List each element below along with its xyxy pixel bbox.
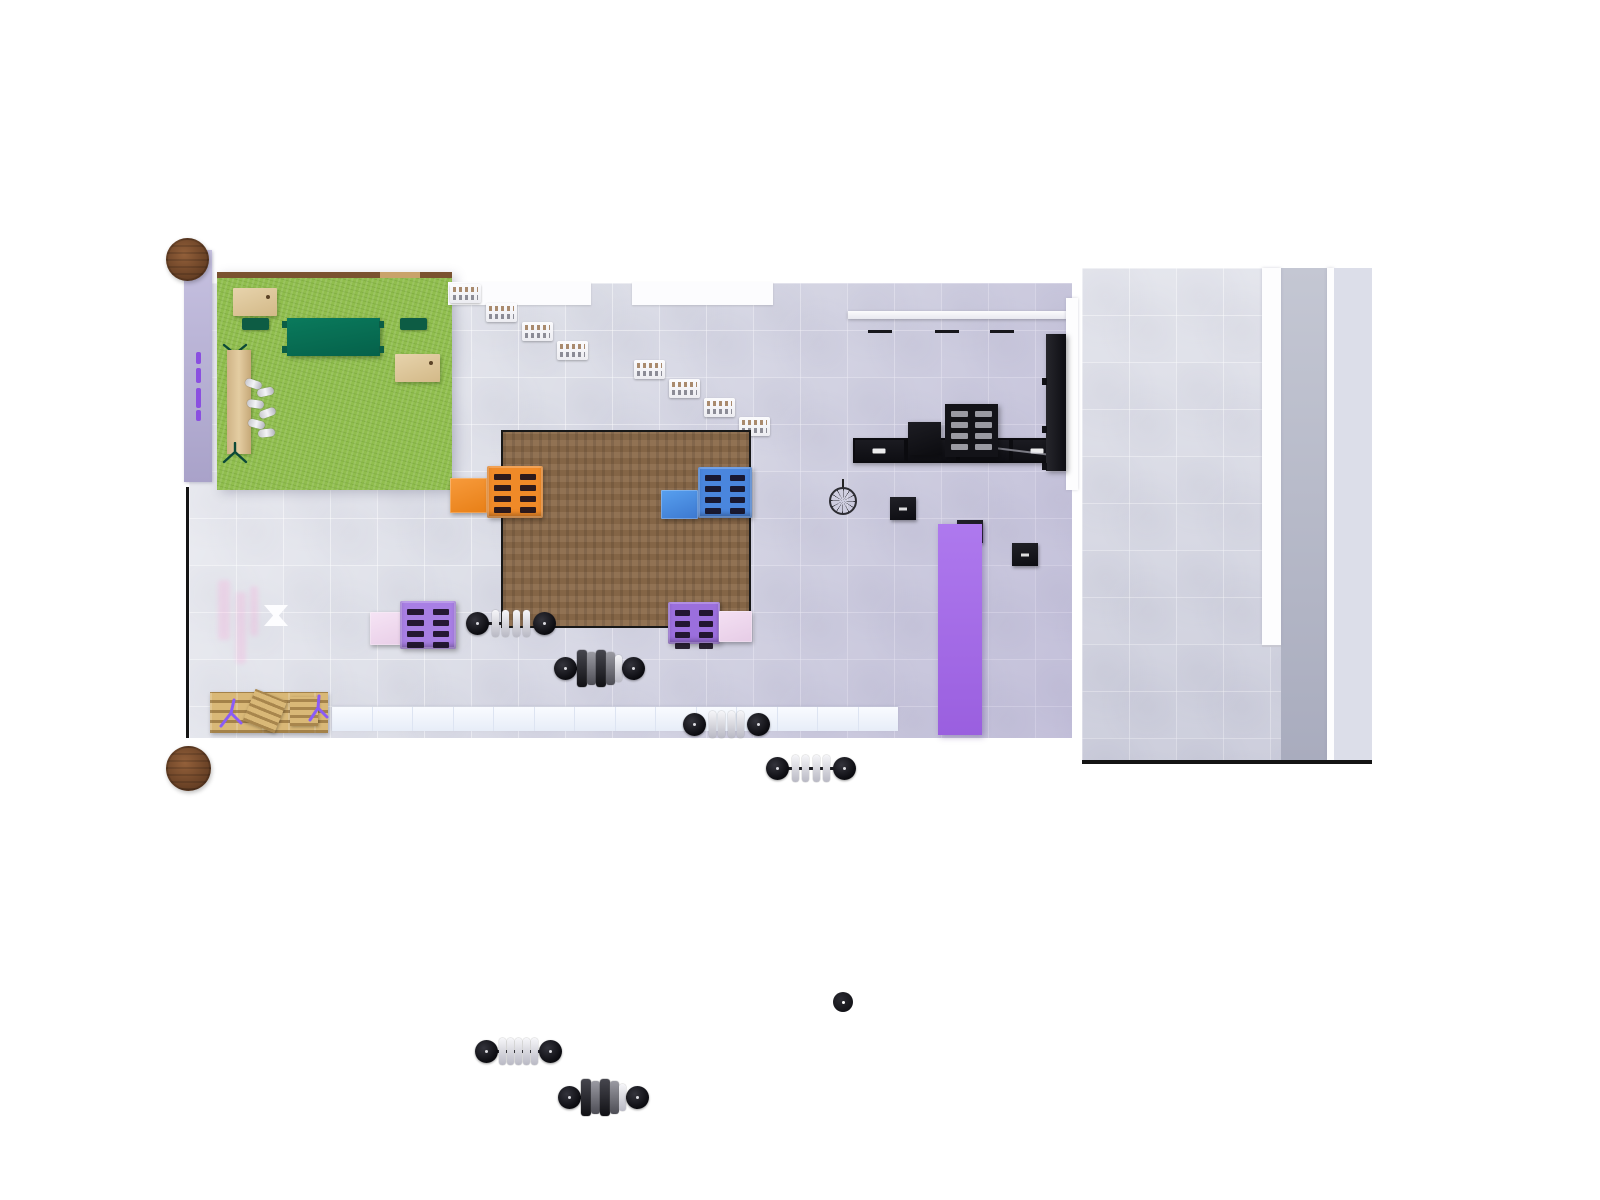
purple-pallet-rack-right <box>668 602 720 644</box>
plate-icon <box>833 757 856 780</box>
floor-decal-1 <box>218 580 230 640</box>
cubby-cell <box>494 707 535 731</box>
plate-icon <box>622 657 645 680</box>
right-hall-wall-strip <box>1327 268 1334 760</box>
rower-2 <box>486 303 517 322</box>
plate-icon <box>475 1040 498 1063</box>
rack-hook-2 <box>1042 426 1047 433</box>
barbell-station-5 <box>475 1029 562 1074</box>
dumbbell-shelf <box>945 404 998 457</box>
console-3 <box>1012 543 1038 566</box>
right-hall-walkway-strip <box>1281 268 1327 760</box>
cubby-cell <box>616 707 657 731</box>
left-wall <box>186 487 189 738</box>
rower-6 <box>669 379 700 398</box>
gym-floorplan-render <box>0 0 1600 1200</box>
blue-box <box>661 490 698 519</box>
cubby-cell <box>454 707 495 731</box>
trestle-bottom-icon <box>221 442 249 466</box>
cubby-shelf-row <box>332 707 898 731</box>
turf-area <box>217 272 452 490</box>
rower-4 <box>557 341 588 360</box>
orange-box <box>450 478 487 513</box>
plate-icon <box>533 612 556 635</box>
plate-icon <box>626 1086 649 1109</box>
plate-icon <box>466 612 489 635</box>
console-1 <box>890 497 916 520</box>
rower-3 <box>522 322 553 341</box>
treadmill-1 <box>855 440 904 461</box>
turf-chair-left <box>242 318 269 330</box>
pink-box-right <box>719 611 752 642</box>
plate-icon <box>766 757 789 780</box>
plyo-box-black <box>908 422 941 455</box>
fan-wheel-icon <box>829 487 857 515</box>
rack-hook-3 <box>1042 463 1047 470</box>
cubby-cell <box>535 707 576 731</box>
turf-desk-left <box>233 288 277 316</box>
barbell-station-4 <box>766 746 856 790</box>
cubby-cell <box>859 707 899 731</box>
plate-icon <box>747 713 770 736</box>
purple-dash-3 <box>196 388 201 408</box>
cardio-mat-right <box>632 282 773 305</box>
floor-decal-3 <box>250 586 258 636</box>
rack-hook-1 <box>1042 378 1047 385</box>
tall-black-rack <box>1046 334 1066 471</box>
cubby-cell <box>575 707 616 731</box>
purple-column-mat <box>938 524 982 735</box>
barbell-station-2-loaded <box>554 641 644 696</box>
dumbbell-cluster <box>243 376 289 442</box>
console-bar-1 <box>868 330 892 333</box>
turf-bench-mat <box>287 318 380 356</box>
rower-1 <box>450 284 481 303</box>
fan-head-icon <box>833 992 853 1012</box>
cubby-cell <box>778 707 819 731</box>
round-wood-table-bottom <box>166 746 211 791</box>
round-wood-table-top <box>166 238 209 281</box>
cubby-cell <box>818 707 859 731</box>
floor-decal-2 <box>236 592 246 664</box>
pink-box-left <box>370 612 401 645</box>
plate-icon <box>539 1040 562 1063</box>
barbell-station-6-loaded <box>558 1071 648 1123</box>
rower-7 <box>704 398 735 417</box>
purple-dash-1 <box>196 352 201 364</box>
rower-5 <box>634 360 665 379</box>
purple-tripod-icon-1 <box>218 698 244 730</box>
plate-icon <box>554 657 577 680</box>
turf-edge-wood-segment <box>380 272 420 278</box>
turf-chair-right <box>400 318 427 330</box>
purple-pallet-rack-left <box>400 601 456 649</box>
lavender-wall-strip <box>184 250 212 482</box>
console-bar-2 <box>935 330 959 333</box>
lifting-platform <box>501 430 751 628</box>
right-hall-edge-strip <box>1334 268 1372 760</box>
purple-dash-4 <box>196 410 201 421</box>
plate-icon <box>558 1086 581 1109</box>
purple-tripod-icon-2 <box>306 694 330 724</box>
right-hall-bottom-wall <box>1082 760 1372 764</box>
rack-wall-strip <box>1066 298 1078 490</box>
divider-column-endcap <box>1262 645 1281 647</box>
cubby-cell <box>413 707 454 731</box>
cubby-cell <box>373 707 414 731</box>
console-bar-3 <box>990 330 1014 333</box>
right-hall-divider-column <box>1262 268 1281 645</box>
blue-pallet-rack <box>698 467 752 518</box>
cubby-cell <box>332 707 373 731</box>
cardio-shelf-strip <box>848 311 1070 319</box>
purple-dash-2 <box>196 368 201 383</box>
plate-icon <box>683 713 706 736</box>
turf-desk-right <box>395 354 440 382</box>
orange-pallet-rack <box>487 466 543 518</box>
